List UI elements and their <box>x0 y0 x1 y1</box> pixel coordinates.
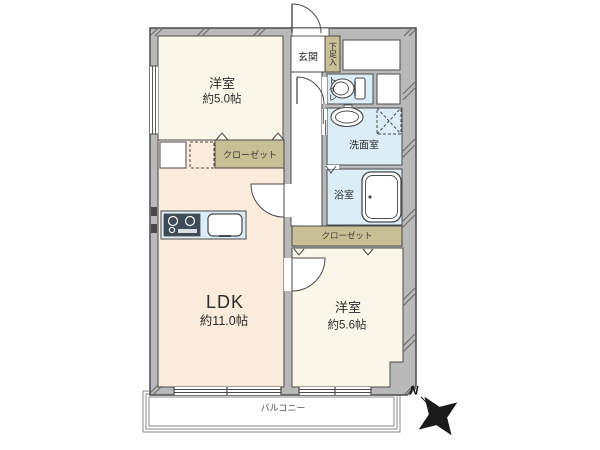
balcony-label: バルコニー <box>261 404 306 414</box>
window-bedroom1-left <box>150 66 158 134</box>
room-ldk <box>158 140 284 387</box>
floor-plan-drawing <box>0 0 600 450</box>
window-bedroom2-balcony <box>299 387 371 395</box>
shoe-cabinet-label: 下足入 <box>328 42 337 66</box>
bathtub-icon <box>362 172 401 222</box>
bathroom-label: 浴室 <box>334 191 354 202</box>
storage-cabinet <box>160 142 186 168</box>
compass-north-label: N <box>410 384 419 397</box>
pipe-space <box>377 74 400 104</box>
storage-room <box>343 40 400 70</box>
kitchen-counter <box>161 211 246 239</box>
room-hallway <box>291 36 325 226</box>
entrance-label: 玄関 <box>298 53 318 64</box>
bedroom1-label: 洋室 <box>209 77 235 91</box>
washroom-sliding-door <box>322 109 327 135</box>
stove-icon <box>164 214 200 236</box>
bedroom1-size-label: 約5.0帖 <box>203 94 242 107</box>
bedroom2-size-label: 約5.6帖 <box>328 320 367 333</box>
ldk-label: LDK <box>206 293 244 313</box>
ldk-size-label: 約11.0帖 <box>200 315 248 329</box>
entrance-door <box>292 4 329 36</box>
floor-plan: 洋室 約5.0帖 LDK 約11.0帖 洋室 約5.6帖 玄関 下足入 トイレ … <box>0 0 600 450</box>
window-ldk-balcony <box>174 387 281 395</box>
closet-front-label: クローゼット <box>223 151 277 161</box>
kitchen-sink-icon <box>208 214 242 236</box>
closet-back-label: クローゼット <box>321 231 372 240</box>
compass-icon <box>419 397 457 435</box>
washroom-label: 洗面室 <box>349 141 379 152</box>
bedroom2-label: 洋室 <box>335 301 361 315</box>
toilet-label: トイレ <box>327 76 336 102</box>
